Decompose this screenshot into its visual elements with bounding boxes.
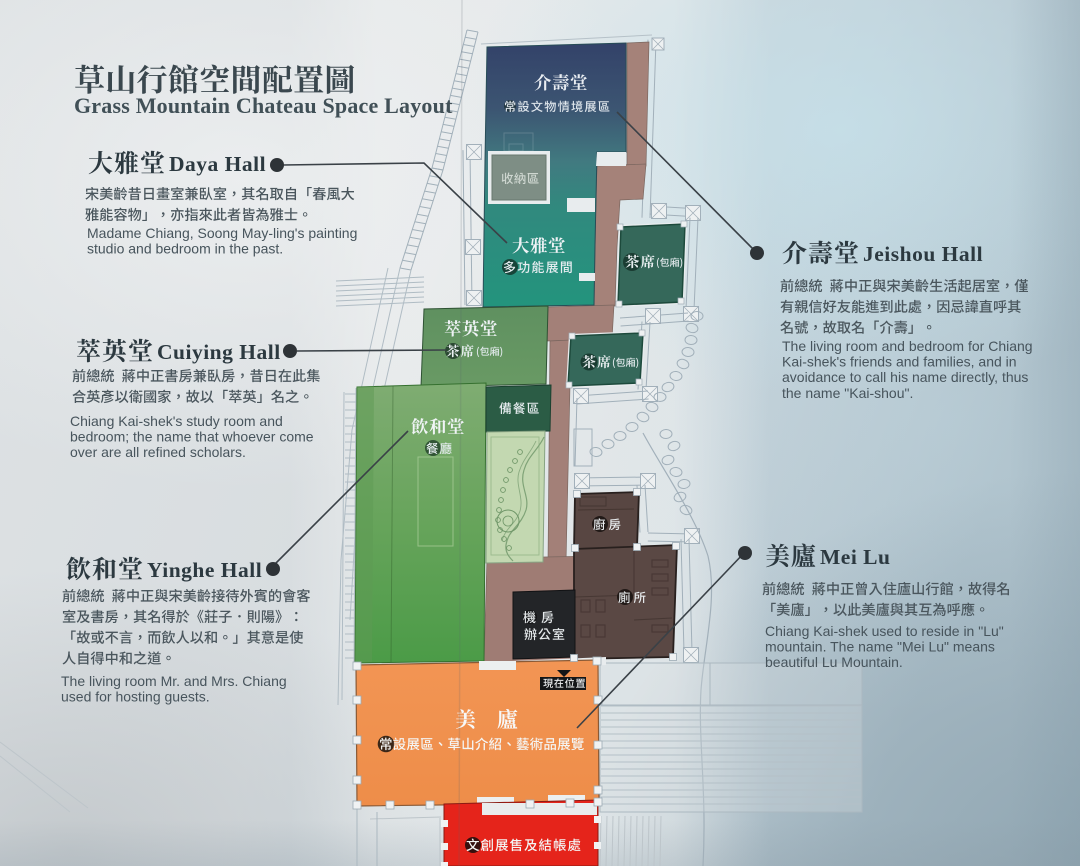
svg-text:Mei Lu: Mei Lu <box>820 545 890 569</box>
svg-text:Daya Hall: Daya Hall <box>169 152 266 176</box>
svg-text:Jeishou Hall: Jeishou Hall <box>863 242 983 266</box>
svg-text:Grass Mountain Chateau Space L: Grass Mountain Chateau Space Layout <box>74 93 453 118</box>
svg-text:Yinghe Hall: Yinghe Hall <box>147 558 262 582</box>
svg-text:Cuiying Hall: Cuiying Hall <box>157 340 281 364</box>
